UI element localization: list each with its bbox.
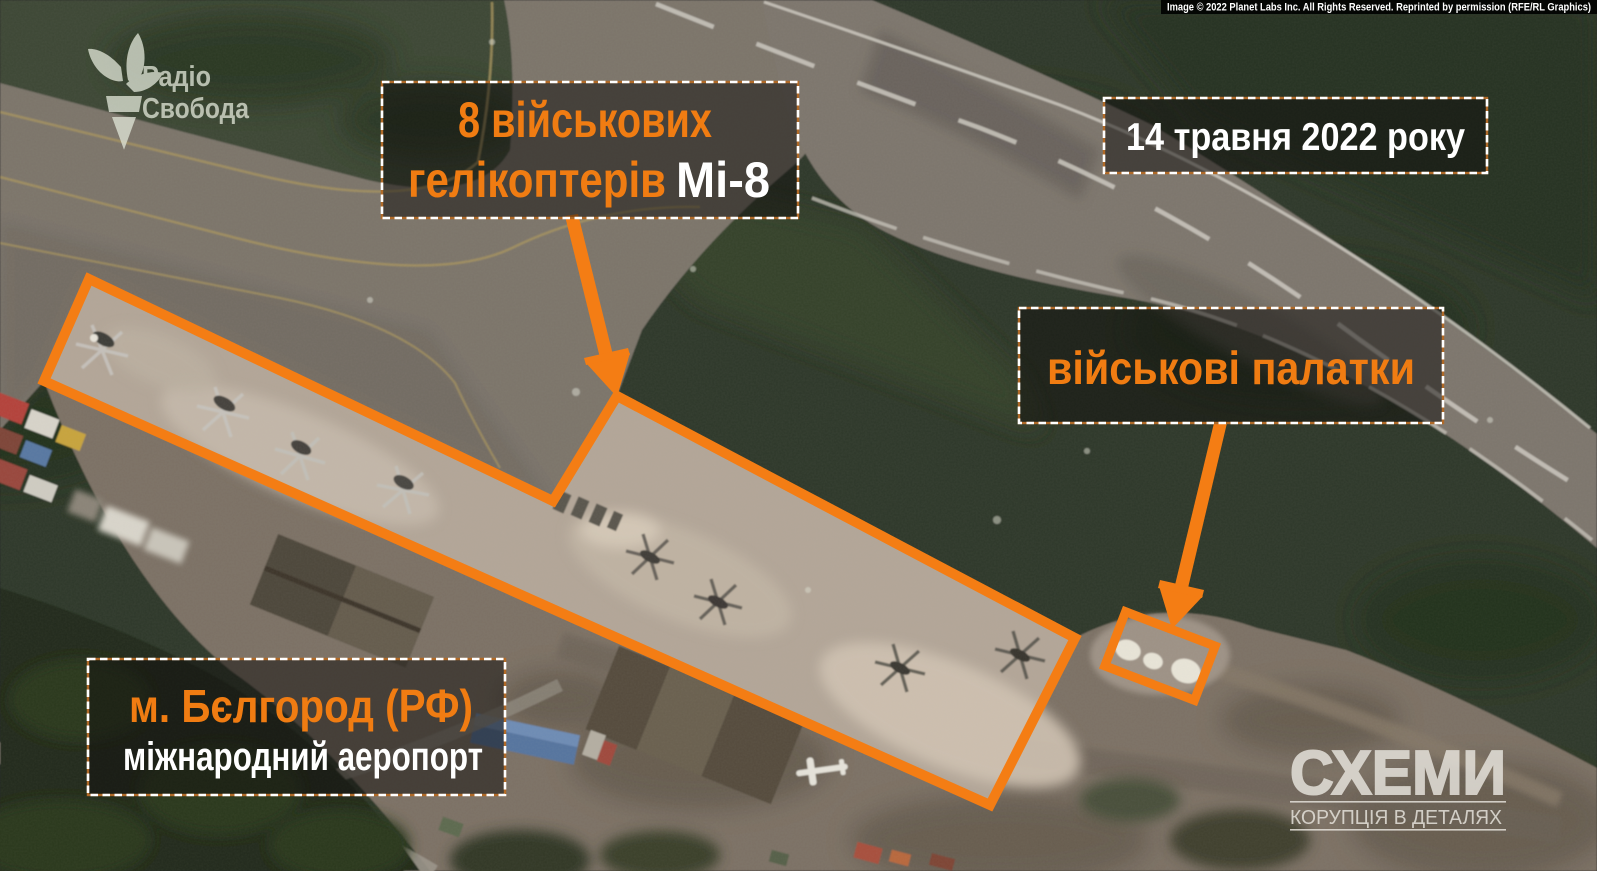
svg-text:14 травня 2022 року: 14 травня 2022 року	[1126, 116, 1465, 159]
svg-text:міжнародний аеропорт: міжнародний аеропорт	[123, 735, 483, 779]
svg-text:м. Бєлгород (РФ): м. Бєлгород (РФ)	[129, 680, 473, 732]
svg-text:Радіо: Радіо	[142, 61, 211, 93]
svg-text:Мі-8: Мі-8	[676, 152, 770, 208]
svg-text:Свобода: Свобода	[142, 93, 250, 125]
svg-text:СХЕМИ: СХЕМИ	[1290, 739, 1506, 808]
svg-text:військові палатки: військові палатки	[1047, 342, 1415, 394]
svg-text:гелікоптерів: гелікоптерів	[408, 152, 666, 208]
svg-text:Image © 2022 Planet Labs Inc.: Image © 2022 Planet Labs Inc. All Rights…	[1167, 2, 1591, 14]
svg-text:КОРУПЦІЯ В ДЕТАЛЯХ: КОРУПЦІЯ В ДЕТАЛЯХ	[1290, 807, 1502, 829]
svg-text:8 військових: 8 військових	[458, 92, 712, 148]
